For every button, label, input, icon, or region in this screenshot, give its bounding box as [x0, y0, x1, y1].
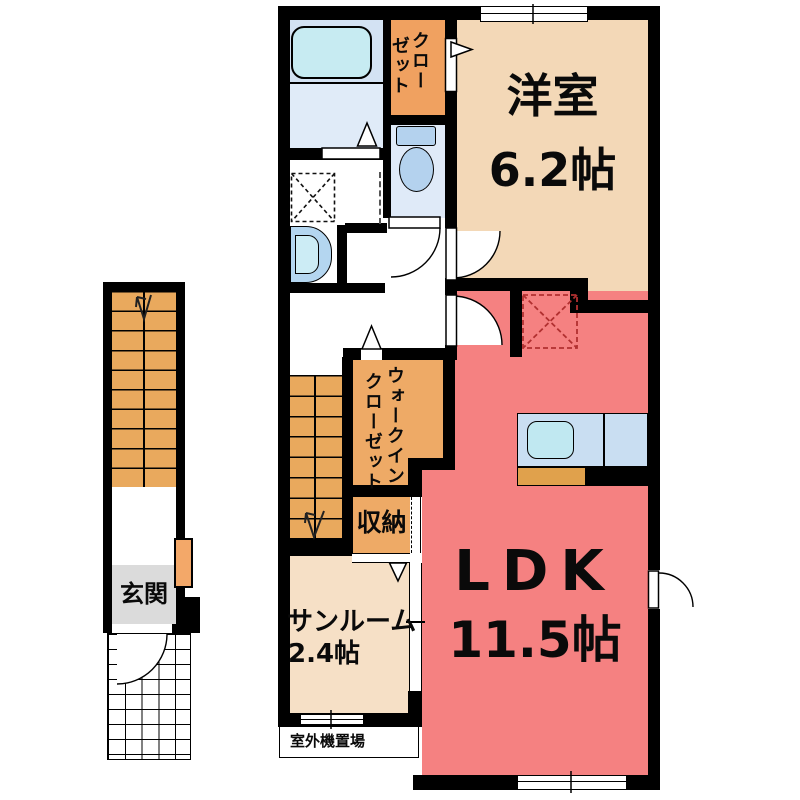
toilet-tank [396, 126, 436, 146]
stairs-upper-centerline [314, 375, 316, 538]
wall-glass-cap [408, 691, 422, 715]
stairs-upper [290, 375, 342, 538]
label-closet-line2: ゼット [389, 36, 408, 96]
label-wic-line2: クローゼット [362, 372, 381, 492]
wall-wic-jog-h [408, 458, 455, 470]
wall-stairs-south [278, 538, 350, 556]
room-bath-lower [283, 83, 383, 148]
kitchen-counter-divider [603, 413, 605, 467]
label-outdoor-unit: 室外機置場 [280, 727, 365, 750]
wall-western-south [445, 278, 588, 291]
label-ldk-size: 11.5帖 [422, 614, 648, 667]
bath-divider-line [283, 82, 383, 84]
label-sunroom-name: サンルーム [287, 609, 416, 636]
wall-top [278, 6, 660, 20]
room-ldk [455, 291, 648, 775]
label-western-name: 洋室 [457, 72, 648, 120]
wall-washroom-hall-h [345, 223, 387, 233]
washroom-opening-dashed [379, 172, 384, 224]
label-closet-line1: クロー [409, 31, 428, 91]
toilet-door-arc [389, 217, 440, 277]
storage-door-gap [352, 553, 410, 563]
porch-tiles [107, 633, 191, 760]
storage-sliding-strip [411, 497, 421, 553]
entry-door-panel [174, 538, 193, 588]
kitchen-sink [527, 421, 574, 459]
entry-wall-nub [183, 597, 200, 633]
stairs-entry-centerline [143, 291, 145, 487]
label-genkan: 玄関 [120, 582, 168, 607]
floorplan-canvas: 玄関 室外機置場 [0, 0, 800, 800]
entry-door-gap [112, 624, 172, 633]
entry-wall-left [103, 282, 112, 633]
entry-wall-top [103, 282, 185, 291]
wall-fridge-west [510, 291, 522, 357]
wall-right [648, 6, 660, 790]
room-genkan: 玄関 [112, 565, 176, 624]
ldk-entry-gap [648, 570, 660, 609]
wall-wic-north [343, 348, 457, 360]
wall-kitchen-block [586, 467, 648, 486]
vanity-basin [295, 235, 319, 274]
wall-washroom-hall-v [337, 225, 347, 283]
wall-stairs-east [342, 357, 353, 556]
window-sunroom-south [300, 714, 364, 725]
window-western-north [480, 6, 588, 22]
label-western-size: 6.2帖 [457, 146, 648, 194]
window-ldk-south [517, 775, 627, 790]
wall-wic-east [443, 360, 455, 460]
toilet-bowl [399, 147, 434, 192]
wall-bath-south [283, 148, 383, 160]
label-wic-line1: ウォークイン [384, 366, 403, 486]
wall-western-step [570, 278, 588, 313]
wall-western-west-a [445, 20, 457, 228]
label-ldk-name: LDK [422, 543, 648, 602]
label-sunroom-size: 2.4帖 [288, 641, 360, 668]
label-storage: 収納 [353, 510, 410, 536]
wall-washroom-south [278, 283, 385, 293]
washing-machine-area [292, 174, 335, 222]
bathtub [291, 26, 372, 79]
wall-western-south-east [588, 300, 648, 313]
outdoor-unit-area: 室外機置場 [279, 726, 419, 758]
kitchen-counter-block [517, 467, 586, 486]
